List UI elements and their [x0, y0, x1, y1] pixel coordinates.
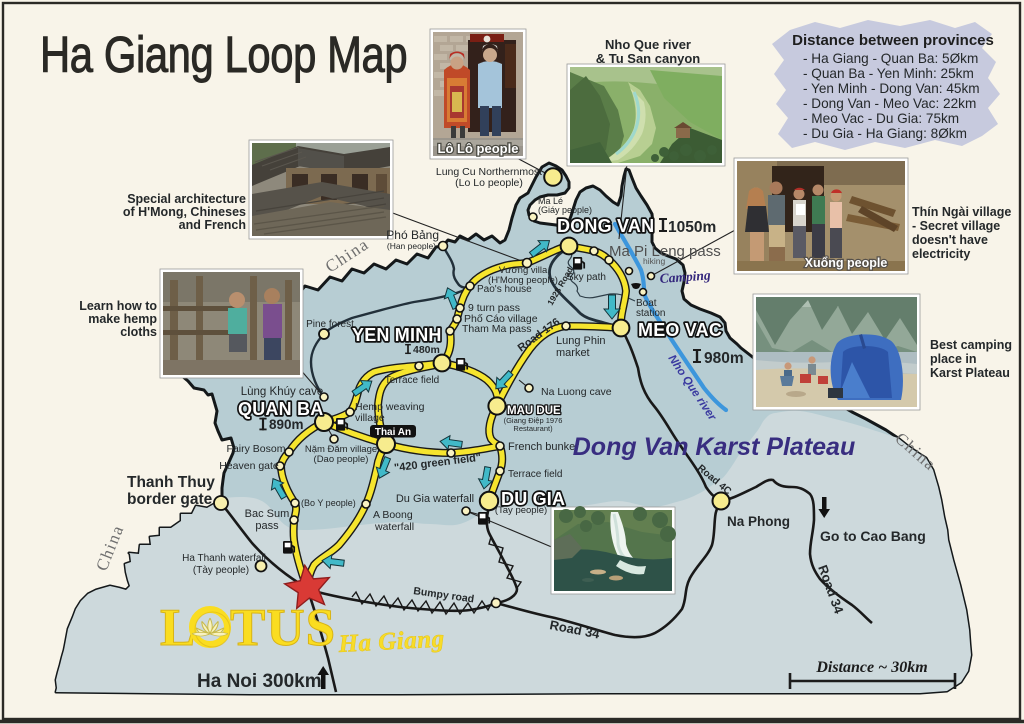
svg-text:Best camping: Best camping	[930, 338, 1012, 352]
svg-text:480m: 480m	[413, 344, 440, 356]
svg-text:border gate: border gate	[127, 491, 213, 508]
svg-text:Ha Noi 300km: Ha Noi 300km	[197, 671, 322, 692]
svg-text:market: market	[556, 347, 590, 359]
svg-text:Ha Thanh waterfall: Ha Thanh waterfall	[182, 553, 266, 564]
svg-text:station: station	[636, 308, 665, 319]
svg-text:Distance ~ 30km: Distance ~ 30km	[815, 659, 927, 676]
svg-text:Na Phong: Na Phong	[727, 514, 790, 529]
svg-text:Thanh Thuy: Thanh Thuy	[127, 474, 215, 491]
svg-text:(Dao people): (Dao people)	[314, 454, 369, 465]
svg-text:Thín Ngài village: Thín Ngài village	[912, 205, 1011, 219]
svg-text:Special architecture: Special architecture	[127, 192, 246, 206]
svg-text:- Meo Vac - Du Gia: 75km: - Meo Vac - Du Gia: 75km	[803, 111, 959, 126]
svg-text:Thai An: Thai An	[375, 427, 411, 438]
svg-text:QUAN BA: QUAN BA	[238, 399, 323, 419]
svg-text:- Secret village: - Secret village	[912, 219, 1000, 233]
svg-text:- Dong Van - Meo Vac: 22km: - Dong Van - Meo Vac: 22km	[803, 96, 976, 111]
svg-text:1050m: 1050m	[668, 219, 716, 236]
svg-text:Xuổng people: Xuổng people	[805, 256, 888, 270]
svg-text:waterfall: waterfall	[374, 521, 414, 533]
svg-text:Na Luong cave: Na Luong cave	[541, 386, 612, 398]
svg-text:Terrace field: Terrace field	[385, 375, 439, 386]
svg-text:doesn't have: doesn't have	[912, 233, 988, 247]
svg-text:TUS: TUS	[230, 599, 336, 657]
svg-text:- Quan Ba - Yen Minh: 25km: - Quan Ba - Yen Minh: 25km	[803, 66, 974, 81]
svg-text:electricity: electricity	[912, 247, 970, 261]
svg-text:(Lo Lo people): (Lo Lo people)	[455, 177, 523, 189]
svg-text:- Ha Giang - Quan Ba: 5Økm: - Ha Giang - Quan Ba: 5Økm	[803, 51, 978, 66]
svg-text:Pao's house: Pao's house	[477, 284, 532, 295]
svg-text:Fairy Bosom: Fairy Bosom	[227, 443, 286, 455]
svg-text:Terrace field: Terrace field	[508, 469, 562, 480]
svg-text:(Giáy people): (Giáy people)	[538, 205, 592, 215]
svg-text:DONG VAN: DONG VAN	[557, 216, 654, 236]
svg-text:Lô Lô people: Lô Lô people	[438, 141, 519, 156]
svg-text:980m: 980m	[704, 350, 744, 367]
svg-text:Ha Giang Loop Map: Ha Giang Loop Map	[40, 26, 407, 83]
svg-text:cloths: cloths	[120, 325, 157, 339]
svg-text:Du Gia waterfall: Du Gia waterfall	[396, 493, 474, 505]
svg-text:Ma Pi Leng pass: Ma Pi Leng pass	[609, 243, 721, 260]
svg-text:Dong Van Karst Plateau: Dong Van Karst Plateau	[573, 433, 855, 461]
svg-text:YEN MINH: YEN MINH	[352, 325, 442, 345]
svg-text:Lung Phin: Lung Phin	[556, 335, 606, 347]
svg-text:village: village	[355, 412, 385, 424]
svg-text:Distance between provinces: Distance between provinces	[792, 32, 994, 49]
svg-text:pass: pass	[255, 520, 279, 532]
svg-text:& Tu San canyon: & Tu San canyon	[596, 51, 701, 66]
svg-text:- Du Gia - Ha Giang: 8Økm: - Du Gia - Ha Giang: 8Økm	[803, 126, 967, 141]
svg-text:Bac Sum: Bac Sum	[245, 508, 290, 520]
svg-text:Nho Que river: Nho Que river	[605, 37, 691, 52]
svg-text:Phó Bảng: Phó Bảng	[386, 228, 439, 242]
svg-text:Lùng Khúy cave: Lùng Khúy cave	[241, 386, 323, 398]
svg-text:(Tay people): (Tay people)	[495, 505, 547, 516]
svg-text:(Han people): (Han people)	[387, 241, 436, 251]
svg-text:890m: 890m	[269, 417, 304, 432]
svg-text:Pine forest: Pine forest	[306, 319, 354, 330]
svg-text:Ha Giang: Ha Giang	[337, 625, 445, 658]
svg-text:Restaurant): Restaurant)	[513, 424, 553, 433]
svg-text:MEO VAC: MEO VAC	[638, 320, 722, 340]
svg-text:Tham Ma pass: Tham Ma pass	[462, 323, 531, 335]
svg-text:Heaven gate: Heaven gate	[219, 460, 279, 472]
svg-text:(Tày people): (Tày people)	[193, 565, 249, 576]
svg-text:and French: and French	[179, 218, 246, 232]
svg-text:Learn how to: Learn how to	[79, 299, 157, 313]
svg-text:- Yen Minh - Dong Van: 45km: - Yen Minh - Dong Van: 45km	[803, 81, 980, 96]
svg-text:place in: place in	[930, 352, 977, 366]
svg-text:(Bo Y people): (Bo Y people)	[301, 498, 356, 508]
svg-text:Go to Cao Bang: Go to Cao Bang	[820, 528, 926, 544]
svg-text:Karst Plateau: Karst Plateau	[930, 366, 1010, 380]
svg-text:French bunker: French bunker	[508, 441, 579, 453]
svg-text:of H'Mong, Chineses: of H'Mong, Chineses	[123, 205, 246, 219]
svg-text:make hemp: make hemp	[88, 312, 157, 326]
svg-text:A Boong: A Boong	[373, 509, 413, 521]
